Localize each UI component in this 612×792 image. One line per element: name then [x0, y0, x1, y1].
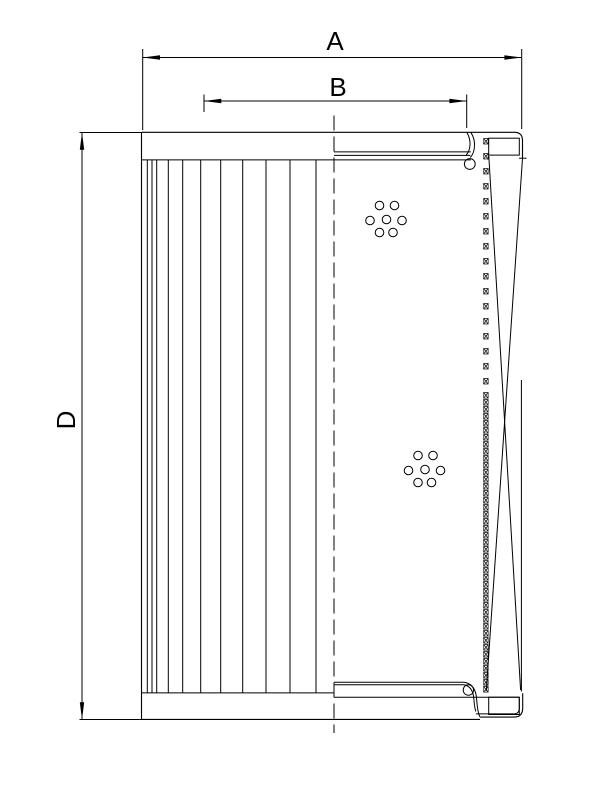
perforation-hole: [382, 215, 391, 224]
perforation-hole: [429, 451, 438, 460]
dim-b-label: B: [329, 72, 346, 102]
technical-drawing-canvas: A B D: [0, 0, 612, 792]
top-potting-region: [489, 138, 520, 155]
dimension-d: D: [51, 133, 142, 720]
perforation-hole: [421, 465, 430, 474]
dimension-b: B: [204, 72, 467, 128]
perforation-hole: [427, 478, 436, 487]
top-end-cap-edge: [142, 132, 523, 158]
top-seal-lip-outer: [470, 132, 474, 157]
drawing-page: A B D: [0, 0, 612, 792]
perforation-hole: [414, 451, 423, 460]
perforation-hole: [404, 466, 413, 475]
bottom-cap-profile-inner: [476, 697, 519, 714]
perforation-hole-clusters: [366, 201, 445, 487]
taper-line-2: [486, 158, 522, 691]
dim-a-label: A: [326, 26, 344, 56]
perforation-hole: [414, 478, 423, 487]
section-view: [334, 132, 527, 717]
pleat-lines: [147, 160, 316, 693]
perforation-hole: [389, 228, 398, 237]
dim-d-arrow-top: [80, 133, 84, 150]
bottom-seal-lip-outer: [464, 682, 480, 717]
core-strip-upper: [483, 138, 488, 392]
perforation-hole: [390, 201, 399, 210]
bottom-potting-region: [489, 697, 520, 714]
perforation-hole: [375, 228, 384, 237]
dim-b-arrow-right: [449, 99, 466, 103]
dim-d-label: D: [51, 411, 81, 430]
dim-a-arrow-right: [504, 55, 521, 59]
perforation-hole: [366, 216, 375, 225]
dim-a-arrow-left: [143, 55, 160, 59]
core-strip-lower: [483, 392, 488, 693]
perforation-hole: [375, 201, 384, 210]
perforation-hole: [398, 216, 407, 225]
dim-d-arrow-bottom: [80, 702, 84, 719]
dim-b-arrow-left: [204, 99, 221, 103]
perforation-hole: [436, 466, 445, 475]
element-outline: [142, 132, 523, 719]
